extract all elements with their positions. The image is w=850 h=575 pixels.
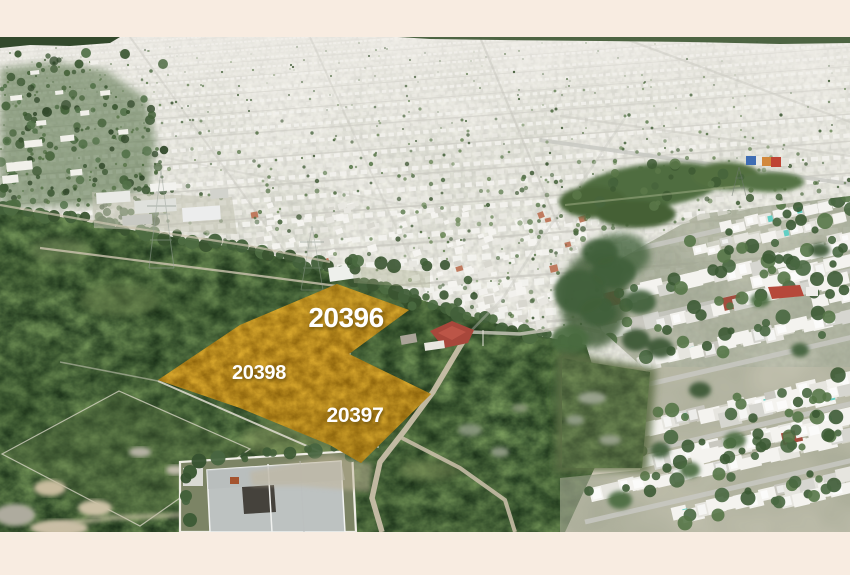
svg-text:20398: 20398 — [232, 362, 286, 384]
svg-text:20396: 20396 — [308, 302, 383, 333]
svg-text:20397: 20397 — [327, 404, 384, 427]
